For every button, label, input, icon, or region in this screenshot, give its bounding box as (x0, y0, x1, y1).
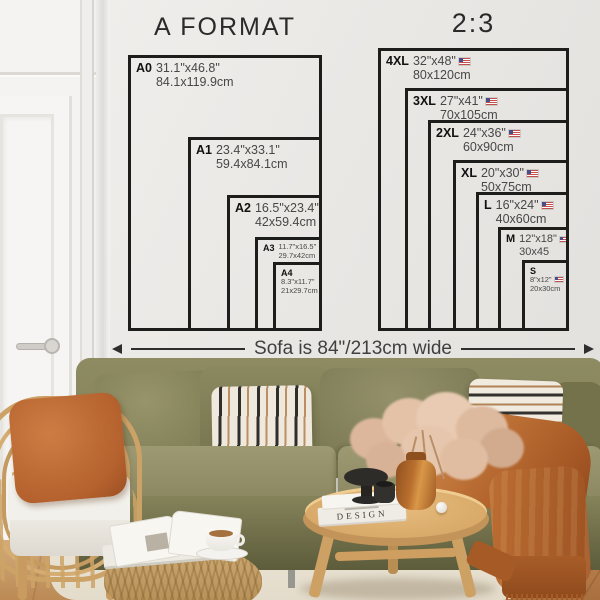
coffee-surface (209, 530, 233, 537)
size-dims: 16"x24"40x60cm (496, 198, 553, 227)
us-flag-icon (509, 130, 520, 137)
dimension-line (131, 348, 245, 350)
flower-bloom (440, 438, 488, 480)
size-dims: 16.5"x23.4"42x59.4cm (255, 201, 319, 230)
ratio-title: 2:3 (378, 8, 569, 39)
size-dims: 32"x48"80x120cm (413, 54, 471, 83)
size-dims: 24"x36"60x90cm (463, 126, 520, 155)
size-dims: 23.4"x33.1"59.4x84.1cm (216, 143, 288, 172)
size-code: M (506, 233, 515, 258)
arrow-right-icon (584, 344, 594, 354)
size-frame-s: S 8"x12"20x30cm (522, 260, 569, 331)
poster-size-guide-image: A FORMAT A0 31.1"x46.8"84.1x119.9cm A1 2… (0, 0, 600, 600)
dried-flowers (340, 390, 530, 480)
door-handle-rose (44, 338, 60, 354)
size-code: XL (461, 166, 477, 195)
amber-vase (396, 460, 436, 510)
size-code: 4XL (386, 54, 409, 83)
black-cup (374, 483, 395, 503)
white-sphere-decor (436, 502, 447, 513)
sofa-width-caption: Sofa is 84"/213cm wide (254, 338, 452, 360)
us-flag-icon (486, 98, 497, 105)
size-code: A3 (263, 243, 275, 260)
us-flag-icon (555, 277, 563, 282)
book-spine-title: DESIGN (336, 509, 388, 522)
size-dims: 8.3"x11.7"21x29.7cm (281, 278, 317, 295)
size-dims: 27"x41"70x105cm (440, 94, 498, 123)
dimension-line (461, 348, 575, 350)
throw-blanket-fringe (506, 594, 584, 600)
size-code: 2XL (436, 126, 459, 155)
size-code: 3XL (413, 94, 436, 123)
orange-pillow (8, 391, 129, 504)
size-dims: 11.7"x16.5"29.7x42cm (279, 243, 317, 260)
size-code: A1 (196, 143, 212, 172)
size-dims: 12"x18"30x45 (519, 233, 568, 258)
size-dims: 31.1"x46.8"84.1x119.9cm (156, 61, 234, 90)
size-dims: 8"x12"20x30cm (530, 276, 564, 293)
us-flag-icon (542, 202, 553, 209)
sofa-width-dimension: Sofa is 84"/213cm wide (112, 338, 594, 360)
us-flag-icon (560, 237, 568, 242)
book-photo (145, 532, 169, 551)
size-frame-a4: A4 8.3"x11.7"21x29.7cm (273, 262, 322, 331)
a-format-title: A FORMAT (128, 13, 322, 42)
size-code: L (484, 198, 492, 227)
size-dims: 20"x30"50x75cm (481, 166, 538, 195)
size-code: A0 (136, 61, 152, 90)
us-flag-icon (459, 58, 470, 65)
arrow-left-icon (112, 344, 122, 354)
size-code: A2 (235, 201, 251, 230)
us-flag-icon (527, 170, 538, 177)
